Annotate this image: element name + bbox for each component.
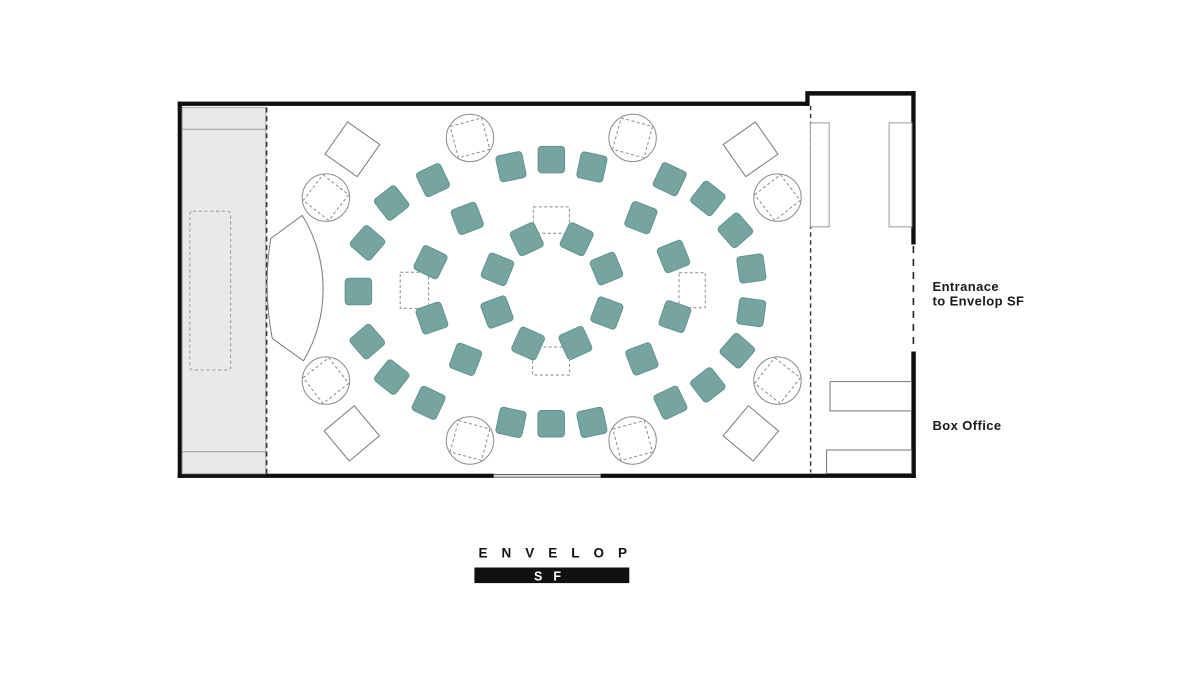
svg-text:Entranace: Entranace [933,279,999,294]
svg-text:SF: SF [534,570,572,584]
svg-text:to Envelop SF: to Envelop SF [933,294,1025,309]
svg-text:Box Office: Box Office [933,418,1002,433]
svg-text:ENVELOP: ENVELOP [479,545,642,560]
